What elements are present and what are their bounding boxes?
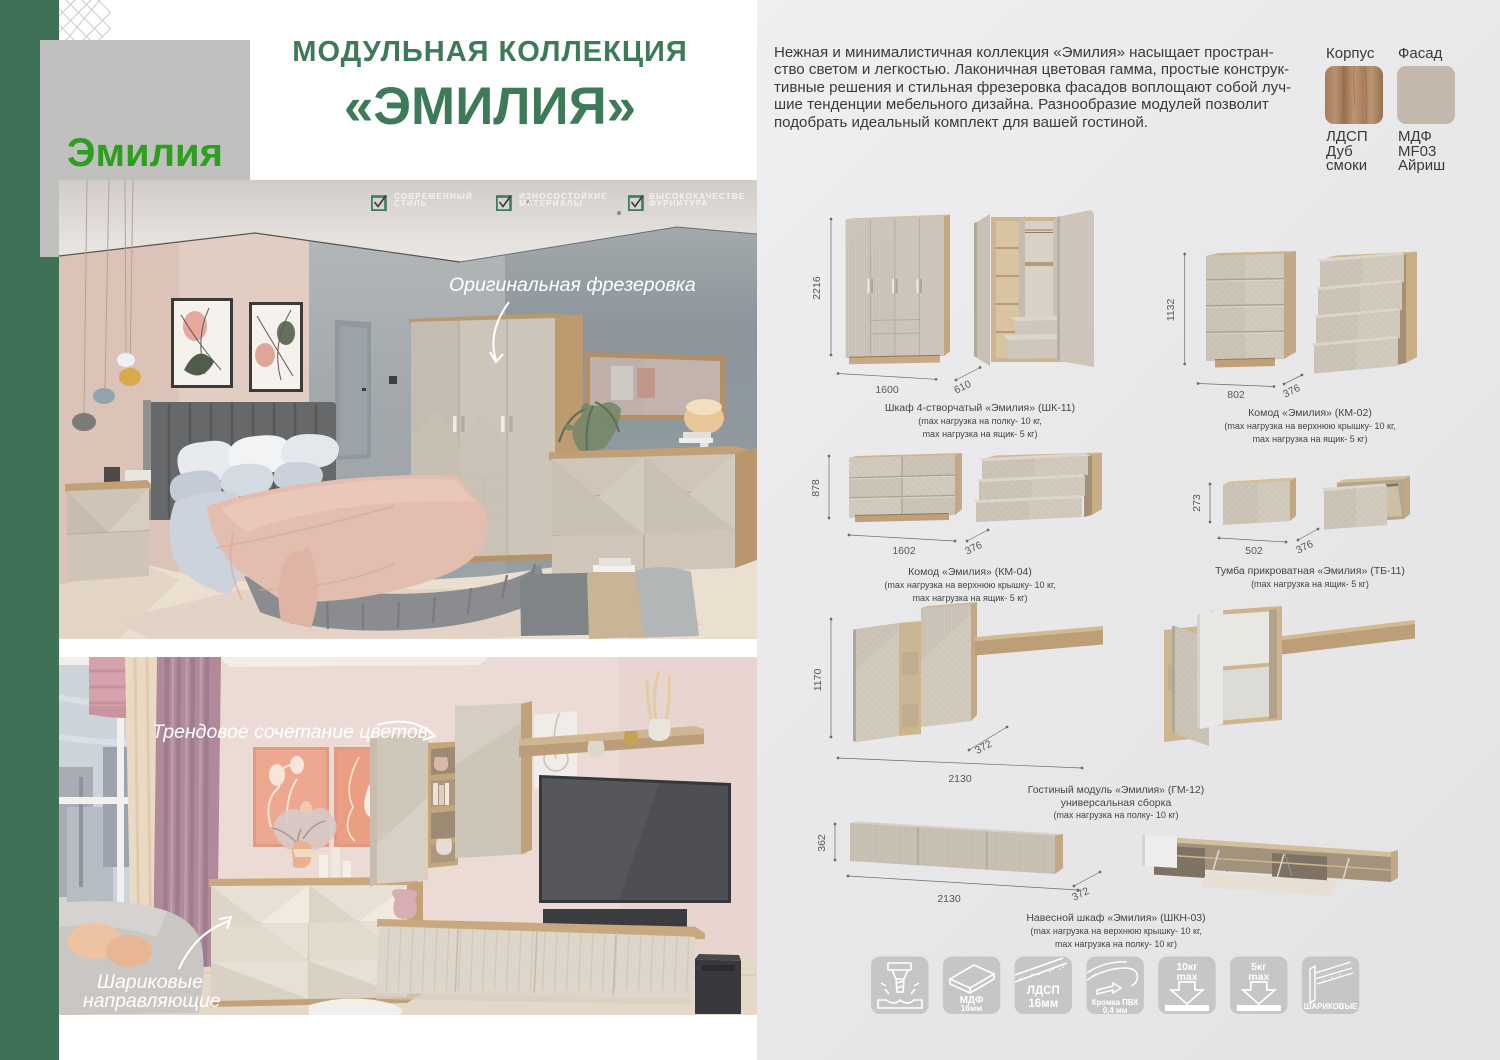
svg-text:1600: 1600 <box>875 384 899 396</box>
svg-text:направляющие: направляющие <box>83 990 221 1012</box>
svg-text:ШАРИКОВЫЕ: ШАРИКОВЫЕ <box>1304 1002 1358 1011</box>
svg-text:Трендовое сочетание цветов: Трендовое сочетание цветов <box>152 721 428 743</box>
svg-text:502: 502 <box>1245 545 1263 557</box>
svg-text:878: 878 <box>810 479 822 497</box>
svg-text:372: 372 <box>1070 885 1091 904</box>
svg-text:2130: 2130 <box>937 893 961 905</box>
svg-text:1170: 1170 <box>812 669 824 692</box>
svg-text:372: 372 <box>973 738 994 757</box>
svg-text:2216: 2216 <box>811 276 823 300</box>
svg-text:16мм: 16мм <box>961 1003 983 1013</box>
svg-text:0,4 мм: 0,4 мм <box>1103 1006 1128 1015</box>
svg-text:1602: 1602 <box>892 545 916 557</box>
svg-text:1132: 1132 <box>1165 299 1177 322</box>
svg-text:273: 273 <box>1191 494 1203 512</box>
svg-text:Оригинальная фрезеровка: Оригинальная фрезеровка <box>449 274 696 296</box>
svg-text:ЛДСП: ЛДСП <box>1027 985 1060 997</box>
svg-text:362: 362 <box>816 834 828 852</box>
svg-text:16мм: 16мм <box>1028 998 1058 1010</box>
svg-text:802: 802 <box>1227 389 1245 401</box>
